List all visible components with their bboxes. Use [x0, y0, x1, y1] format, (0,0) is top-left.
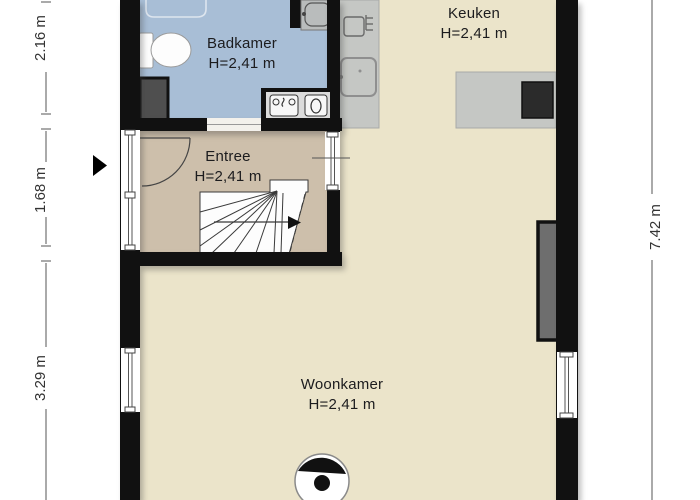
entrance-arrow-icon — [93, 155, 107, 176]
room-label-badkamer: Badkamer H=2,41 m — [162, 34, 322, 74]
badkamer-name: Badkamer — [162, 34, 322, 54]
floor-plan: Badkamer H=2,41 m Keuken H=2,41 m Entree… — [0, 0, 700, 500]
front-door-assembly — [121, 130, 140, 250]
dark-appliance-icon — [522, 82, 553, 118]
kitchen-island — [456, 72, 556, 128]
window-icon-left — [121, 348, 140, 412]
window-icon-right — [557, 352, 577, 418]
entree-south-wall — [120, 252, 342, 266]
woonkamer-name: Woonkamer — [262, 375, 422, 395]
woonkamer-height: H=2,41 m — [262, 395, 422, 415]
dimension-label-2-16: 2.16 m — [33, 0, 49, 78]
keuken-height: H=2,41 m — [394, 24, 554, 44]
bathroom-door-opening — [207, 118, 263, 131]
room-label-woonkamer: Woonkamer H=2,41 m — [262, 375, 422, 415]
right-exterior-wall — [556, 0, 578, 500]
room-label-keuken: Keuken H=2,41 m — [394, 4, 554, 44]
washbasin-icon — [290, 0, 333, 30]
floor-plan-drawing — [0, 0, 700, 500]
entree-name: Entree — [148, 147, 308, 167]
entree-height: H=2,41 m — [148, 167, 308, 187]
dimension-label-3-29: 3.29 m — [33, 338, 49, 418]
shaft — [140, 78, 168, 120]
wood-stove-icon — [295, 454, 349, 500]
room-label-entree: Entree H=2,41 m — [148, 147, 308, 187]
kitchen-counter-left — [336, 0, 379, 128]
dimension-label-1-68: 1.68 m — [33, 150, 49, 230]
badkamer-height: H=2,41 m — [162, 54, 322, 74]
double-washbasin-icon — [261, 88, 335, 131]
dimension-label-7-42: 7.42 m — [648, 187, 664, 267]
keuken-name: Keuken — [394, 4, 554, 24]
